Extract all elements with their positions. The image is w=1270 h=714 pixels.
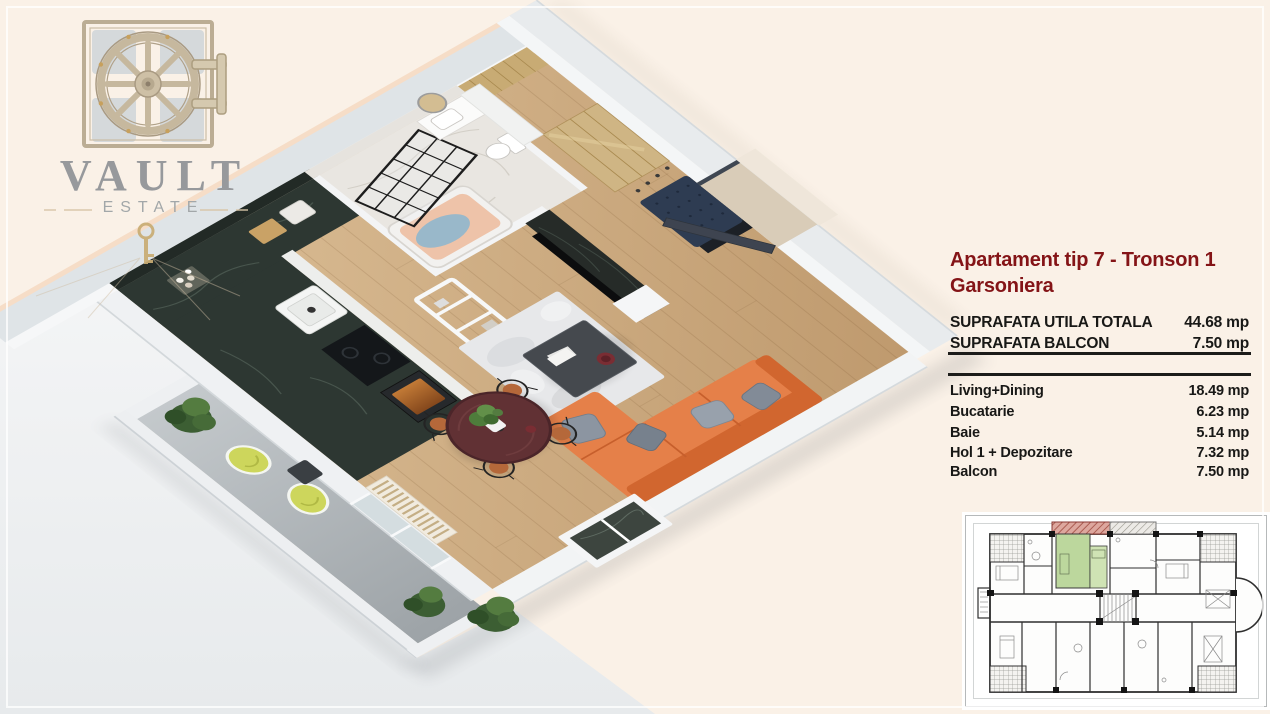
summary-row-balcony-area: SUPRAFATA BALCON 7.50 mp [950,335,1249,353]
apartment-title: Apartament tip 7 - Tronson 1 [950,249,1216,272]
logo-subtitle: ESTATE [34,199,266,217]
divider-line [948,352,1251,355]
room-row-hall: Hol 1 + Depozitare 7.32 mp [950,445,1249,461]
room-value: 6.23 mp [1196,404,1249,420]
summary-label: SUPRAFATA BALCON [950,335,1109,353]
summary-label: SUPRAFATA UTILA TOTALA [950,314,1153,332]
room-value: 7.50 mp [1196,464,1249,480]
room-value: 5.14 mp [1196,425,1249,441]
terrace-hatch [990,666,1026,692]
room-value: 18.49 mp [1189,383,1249,399]
vault-door-icon [84,22,226,146]
divider-line [948,373,1251,376]
building-floor-plan-thumbnail [962,512,1270,710]
terrace-hatch [1198,666,1236,692]
room-label: Hol 1 + Depozitare [950,445,1073,461]
logo-title: VAULT [34,150,266,201]
apartment-subtitle: Garsoniera [950,275,1054,298]
room-value: 7.32 mp [1196,445,1249,461]
room-label: Balcon [950,464,997,480]
room-label: Baie [950,425,980,441]
highlight-unit [1056,534,1090,588]
room-row-balcony: Balcon 7.50 mp [950,464,1249,480]
room-label: Bucatarie [950,404,1014,420]
summary-row-total-area: SUPRAFATA UTILA TOTALA 44.68 mp [950,314,1249,332]
room-label: Living+Dining [950,383,1044,399]
terrace-hatch [990,534,1024,562]
summary-value: 7.50 mp [1193,335,1249,353]
highlight-balcony [1052,522,1110,534]
scene-graphics [0,0,1270,714]
summary-value: 44.68 mp [1184,314,1249,332]
terrace-hatch [1200,534,1236,562]
floorplan-presentation-card: VAULT ESTATE Apartament tip 7 - Tronson … [0,0,1270,714]
room-row-kitchen: Bucatarie 6.23 mp [950,404,1249,420]
room-row-living: Living+Dining 18.49 mp [950,383,1249,399]
room-row-bathroom: Baie 5.14 mp [950,425,1249,441]
